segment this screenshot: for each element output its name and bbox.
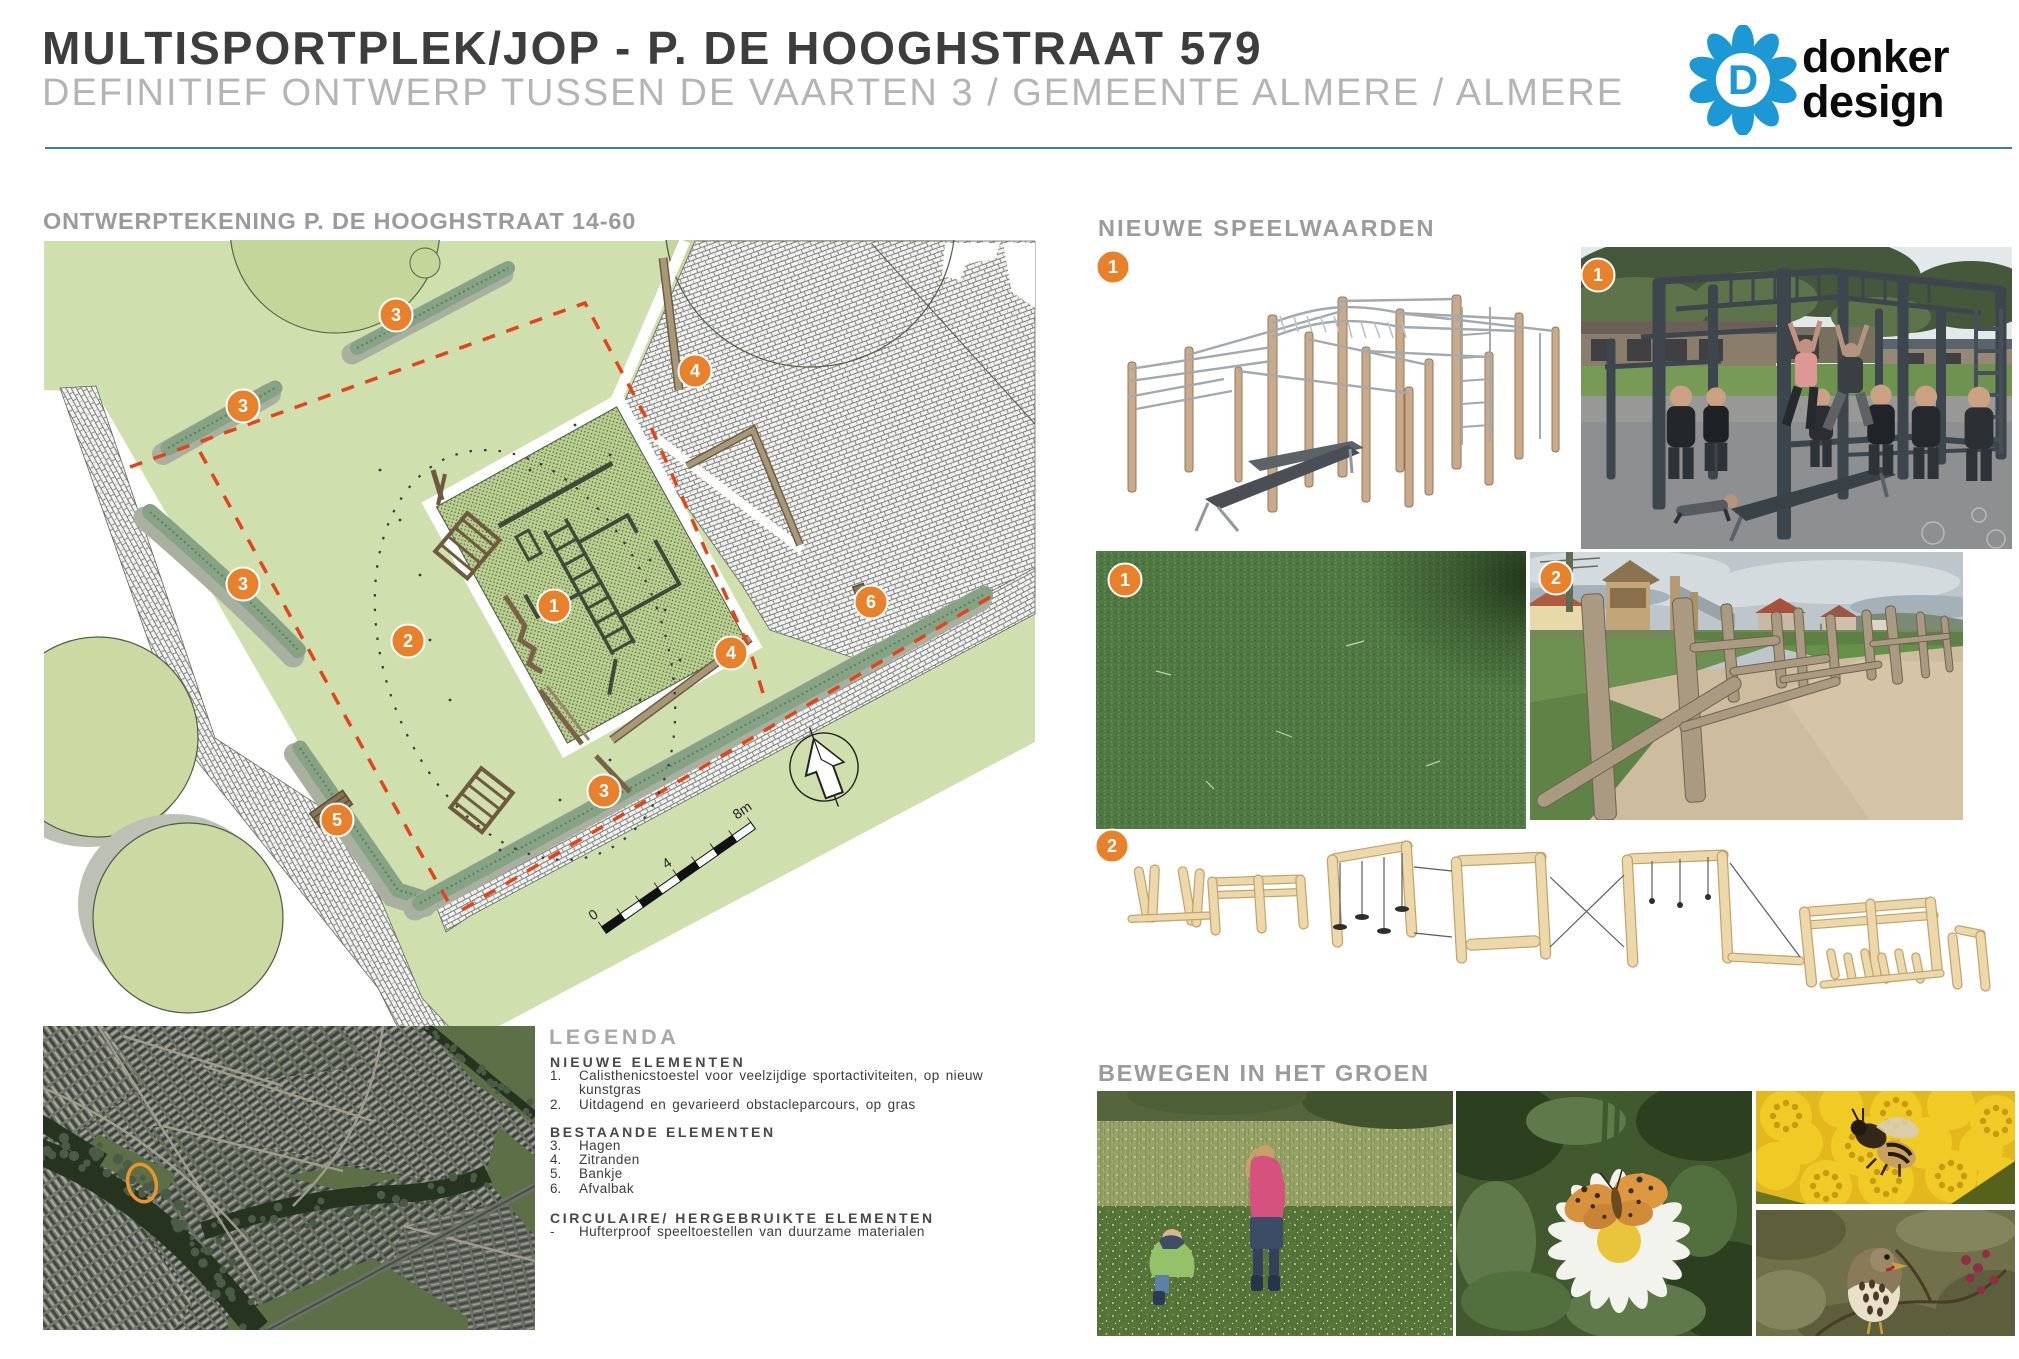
svg-text:1: 1	[549, 596, 559, 616]
svg-text:2: 2	[1107, 836, 1117, 856]
svg-text:5: 5	[332, 810, 342, 830]
svg-text:3: 3	[391, 305, 401, 325]
svg-text:3: 3	[238, 574, 248, 594]
svg-text:1: 1	[1108, 257, 1118, 277]
svg-text:4: 4	[726, 643, 736, 663]
svg-text:3: 3	[238, 396, 248, 416]
svg-text:donker: donker	[1802, 31, 1949, 82]
svg-text:design: design	[1802, 76, 1944, 127]
svg-text:2: 2	[403, 631, 413, 651]
svg-text:1: 1	[1593, 265, 1603, 285]
svg-text:D: D	[1728, 56, 1758, 103]
svg-text:4: 4	[690, 361, 700, 381]
svg-text:3: 3	[599, 781, 609, 801]
svg-text:6: 6	[866, 592, 876, 612]
svg-text:1: 1	[1120, 570, 1130, 590]
svg-text:2: 2	[1551, 568, 1561, 588]
